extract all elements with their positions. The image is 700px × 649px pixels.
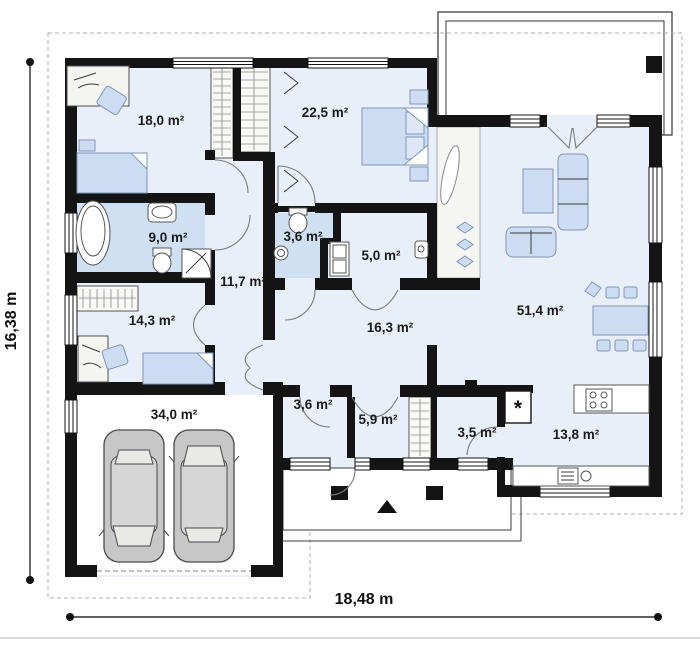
nightstand xyxy=(410,90,428,104)
terrace-pillar xyxy=(646,56,662,73)
dining-chair xyxy=(624,287,637,298)
room-label-vestibule: 5,9 m² xyxy=(358,412,398,427)
room-label-bedroom-side: 14,3 m² xyxy=(129,313,176,328)
stove xyxy=(586,389,612,411)
room-label-hallway-main: 16,3 m² xyxy=(367,320,414,335)
porch-pillar-right xyxy=(426,486,443,500)
dining-table xyxy=(593,306,648,335)
room-label-wc-upper: 3,6 m² xyxy=(283,229,323,244)
window xyxy=(65,213,77,253)
window xyxy=(308,58,388,68)
dining-chair xyxy=(606,287,619,298)
window xyxy=(290,458,330,470)
floor-plan-svg: * xyxy=(0,0,700,649)
room-label-bedroom-front: 18,0 m² xyxy=(138,113,185,128)
room-label-living-room: 51,4 m² xyxy=(517,303,564,318)
width-dimension-label: 18,48 m xyxy=(335,591,394,608)
sofa xyxy=(558,154,588,230)
dimension-left: 16,38 m xyxy=(3,58,34,584)
boiler-niche: * xyxy=(505,391,531,423)
window xyxy=(540,485,610,497)
coffee-table xyxy=(523,169,553,213)
window xyxy=(510,115,540,127)
dining-chair xyxy=(597,340,610,351)
page-divider xyxy=(0,637,700,639)
boiler-marker: * xyxy=(514,397,523,420)
room-label-bedroom-middle: 22,5 m² xyxy=(302,105,349,120)
room-label-utility: 5,0 m² xyxy=(361,248,401,263)
porch xyxy=(283,468,521,541)
window xyxy=(173,58,253,68)
room-label-pantry: 3,5 m² xyxy=(457,425,497,440)
window xyxy=(458,458,488,470)
window xyxy=(65,400,77,433)
floor-plan: * xyxy=(0,0,700,649)
car xyxy=(99,430,169,562)
dining-chair xyxy=(633,340,646,351)
room-label-wc-lower: 3,6 m² xyxy=(293,397,333,412)
window xyxy=(355,458,370,470)
window xyxy=(649,167,662,243)
window xyxy=(65,295,77,345)
nightstand xyxy=(79,140,95,151)
window xyxy=(597,115,630,127)
room-label-kitchen: 13,8 m² xyxy=(553,427,600,442)
height-dimension-label: 16,38 m xyxy=(3,292,20,351)
room-label-hallway-bedrooms: 11,7 m² xyxy=(220,274,266,289)
dimension-bottom: 18,48 m xyxy=(66,591,662,621)
room-label-garage: 34,0 m² xyxy=(151,407,198,422)
nightstand xyxy=(410,167,428,181)
room-label-bathroom: 9,0 m² xyxy=(148,230,188,245)
fireplace-column xyxy=(437,127,480,278)
dining-chair xyxy=(615,340,628,351)
window xyxy=(649,282,662,357)
window xyxy=(403,458,430,470)
car xyxy=(169,430,239,562)
